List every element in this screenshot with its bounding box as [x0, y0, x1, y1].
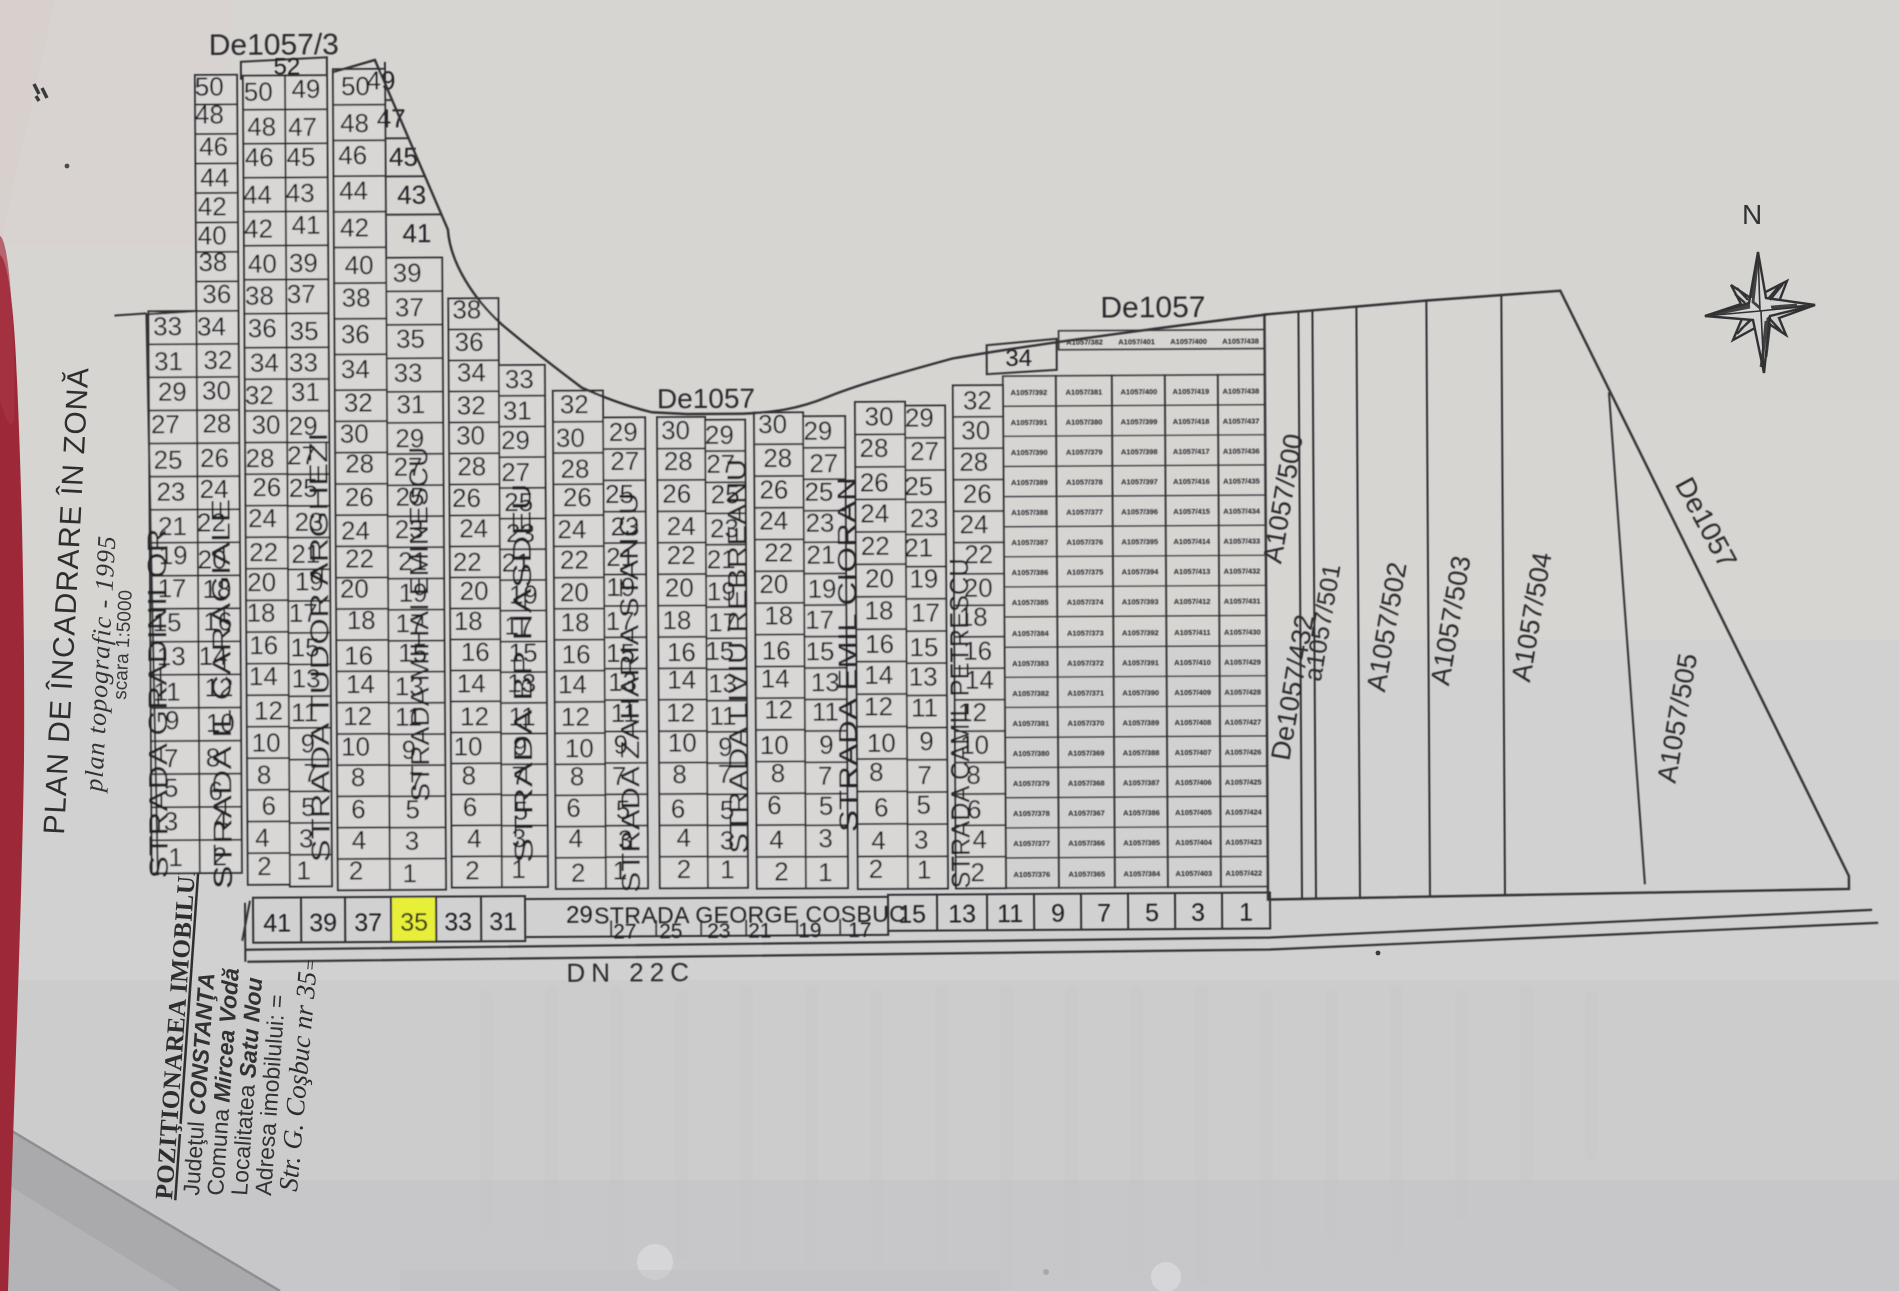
svg-text:A1057/372: A1057/372	[1067, 659, 1104, 668]
svg-text:18: 18	[560, 607, 589, 637]
svg-text:12: 12	[864, 691, 893, 721]
svg-text:13: 13	[909, 662, 938, 692]
svg-text:A1057/400: A1057/400	[1121, 387, 1158, 396]
svg-text:44: 44	[200, 162, 229, 192]
svg-text:9: 9	[919, 726, 934, 756]
svg-text:A1057/388: A1057/388	[1011, 508, 1048, 517]
svg-text:24: 24	[759, 506, 788, 536]
svg-text:42: 42	[244, 213, 273, 243]
svg-text:44: 44	[243, 180, 272, 210]
svg-text:37: 37	[395, 292, 424, 322]
svg-text:30: 30	[661, 415, 690, 445]
svg-text:2: 2	[465, 855, 480, 885]
svg-text:A1057/423: A1057/423	[1225, 838, 1262, 847]
svg-text:18: 18	[764, 601, 793, 631]
svg-text:13: 13	[948, 900, 976, 928]
svg-text:38: 38	[198, 247, 227, 277]
svg-text:5: 5	[1145, 899, 1159, 927]
svg-text:8: 8	[869, 757, 884, 787]
svg-text:A1057/431: A1057/431	[1224, 597, 1261, 606]
svg-text:De1057: De1057	[1100, 291, 1205, 325]
svg-text:26: 26	[563, 482, 592, 512]
svg-text:STRADA TUDOR ARGHEZI: STRADA TUDOR ARGHEZI	[303, 432, 336, 862]
svg-text:30: 30	[202, 375, 231, 405]
svg-text:26: 26	[662, 478, 691, 508]
svg-text:A1057/406: A1057/406	[1175, 778, 1212, 787]
svg-text:44: 44	[339, 175, 368, 205]
svg-text:10: 10	[760, 730, 789, 760]
svg-text:A1057/388: A1057/388	[1123, 748, 1160, 757]
svg-text:A1057/398: A1057/398	[1121, 447, 1158, 456]
svg-text:A1057/411: A1057/411	[1174, 628, 1210, 637]
svg-text:10: 10	[252, 728, 281, 758]
svg-text:3: 3	[1191, 899, 1205, 927]
svg-text:8: 8	[771, 758, 786, 788]
svg-text:9: 9	[819, 730, 834, 760]
svg-text:1: 1	[402, 858, 417, 888]
svg-text:2: 2	[677, 854, 692, 884]
svg-text:20: 20	[865, 563, 894, 593]
svg-text:22: 22	[249, 537, 278, 567]
svg-text:45: 45	[286, 142, 315, 172]
svg-text:A1057/367: A1057/367	[1068, 809, 1105, 818]
svg-text:A1057/412: A1057/412	[1174, 597, 1211, 606]
svg-text:STRADA MIHAI EMINESCU: STRADA MIHAI EMINESCU	[403, 447, 435, 802]
svg-text:A1057/394: A1057/394	[1122, 567, 1160, 576]
svg-text:5: 5	[819, 791, 834, 821]
svg-text:20: 20	[247, 567, 276, 597]
svg-text:A1057/390: A1057/390	[1011, 448, 1048, 457]
svg-text:N: N	[1742, 199, 1762, 230]
svg-text:A1057/387: A1057/387	[1123, 778, 1160, 787]
svg-text:A1057/416: A1057/416	[1173, 477, 1210, 486]
svg-text:A1057/414: A1057/414	[1173, 537, 1211, 546]
svg-text:6: 6	[566, 793, 581, 823]
svg-text:6: 6	[261, 791, 276, 821]
svg-text:A1057/370: A1057/370	[1068, 719, 1105, 728]
svg-text:A1057/404: A1057/404	[1175, 838, 1213, 847]
svg-text:10: 10	[867, 728, 896, 758]
svg-text:41: 41	[263, 909, 291, 937]
svg-text:A1057/408: A1057/408	[1175, 718, 1212, 727]
svg-text:30: 30	[961, 415, 990, 445]
svg-text:30: 30	[456, 420, 485, 450]
svg-text:26: 26	[200, 443, 229, 473]
svg-text:4: 4	[871, 825, 886, 855]
svg-text:8: 8	[257, 760, 272, 790]
svg-text:STRADA LIVIU REBREANU: STRADA LIVIU REBREANU	[721, 459, 753, 854]
svg-text:A1057/422: A1057/422	[1225, 869, 1262, 878]
svg-text:19: 19	[909, 563, 938, 593]
svg-text:4: 4	[769, 824, 784, 854]
svg-text:49: 49	[366, 65, 395, 95]
svg-text:A1057/427: A1057/427	[1225, 718, 1262, 727]
svg-text:18: 18	[662, 605, 691, 635]
svg-text:27: 27	[910, 436, 939, 466]
svg-text:3: 3	[818, 823, 833, 853]
svg-text:De1057: De1057	[657, 383, 755, 415]
svg-text:1: 1	[720, 854, 735, 884]
svg-text:4: 4	[467, 823, 482, 853]
svg-text:A1057/428: A1057/428	[1224, 688, 1261, 697]
svg-text:16: 16	[344, 640, 373, 670]
svg-text:35: 35	[396, 324, 425, 354]
svg-text:49: 49	[291, 74, 320, 104]
svg-text:10: 10	[565, 733, 594, 763]
svg-text:A1057/385: A1057/385	[1012, 598, 1049, 607]
svg-text:A1057/377: A1057/377	[1013, 839, 1050, 848]
svg-text:33: 33	[394, 358, 423, 388]
svg-text:33: 33	[505, 364, 534, 394]
svg-text:32: 32	[344, 388, 373, 418]
svg-text:A1057/434: A1057/434	[1223, 507, 1261, 516]
svg-text:18: 18	[347, 605, 376, 635]
svg-text:24: 24	[667, 511, 696, 541]
svg-text:43: 43	[286, 178, 315, 208]
svg-text:6: 6	[351, 794, 366, 824]
svg-text:A1057/433: A1057/433	[1223, 537, 1260, 546]
svg-text:14: 14	[864, 660, 893, 690]
svg-text:A1057/399: A1057/399	[1121, 417, 1158, 426]
svg-text:16: 16	[562, 639, 591, 669]
svg-text:24: 24	[341, 515, 370, 545]
svg-text:2: 2	[774, 856, 789, 886]
svg-text:A1057/374: A1057/374	[1067, 598, 1105, 607]
svg-text:16: 16	[249, 630, 278, 660]
svg-text:A1057/410: A1057/410	[1174, 658, 1211, 667]
svg-text:39: 39	[393, 258, 422, 288]
svg-text:42: 42	[340, 212, 369, 242]
svg-text:30: 30	[340, 418, 369, 448]
svg-text:18: 18	[246, 597, 275, 627]
svg-text:8: 8	[672, 759, 687, 789]
svg-text:10: 10	[454, 731, 483, 761]
svg-text:A1057/392: A1057/392	[1011, 388, 1048, 397]
svg-text:27: 27	[809, 448, 838, 478]
svg-text:A1057/391: A1057/391	[1122, 658, 1159, 667]
svg-text:46: 46	[199, 132, 228, 162]
svg-text:31: 31	[396, 389, 425, 419]
svg-text:A1057/403: A1057/403	[1175, 869, 1212, 878]
svg-text:A1057/384: A1057/384	[1123, 869, 1161, 878]
svg-text:32: 32	[963, 385, 992, 415]
svg-text:38: 38	[245, 280, 274, 310]
svg-text:33: 33	[444, 908, 472, 936]
svg-text:A1057/436: A1057/436	[1223, 447, 1260, 456]
svg-text:10: 10	[668, 727, 697, 757]
svg-text:36: 36	[341, 319, 370, 349]
svg-text:A1057/368: A1057/368	[1068, 779, 1105, 788]
svg-text:STRADA EMIL CIORAN: STRADA EMIL CIORAN	[831, 477, 863, 832]
svg-text:28: 28	[202, 408, 231, 438]
svg-text:14: 14	[558, 669, 587, 699]
svg-text:26: 26	[759, 475, 788, 505]
svg-text:DN 22C: DN 22C	[566, 957, 695, 988]
svg-text:22: 22	[764, 538, 793, 568]
svg-text:8: 8	[351, 762, 366, 792]
svg-text:A1057/395: A1057/395	[1121, 537, 1158, 546]
svg-text:14: 14	[667, 664, 696, 694]
svg-text:7: 7	[1097, 899, 1111, 927]
svg-text:A1057/409: A1057/409	[1174, 688, 1211, 697]
svg-text:20: 20	[560, 577, 589, 607]
svg-text:A1057/366: A1057/366	[1068, 839, 1105, 848]
svg-text:35: 35	[400, 909, 428, 937]
svg-text:6: 6	[463, 792, 478, 822]
svg-text:A1057/382: A1057/382	[1012, 689, 1049, 698]
svg-text:A1057/391: A1057/391	[1011, 418, 1048, 427]
svg-text:2: 2	[869, 854, 884, 884]
svg-text:11: 11	[911, 692, 938, 722]
svg-text:40: 40	[198, 220, 227, 250]
svg-text:A1057/376: A1057/376	[1066, 538, 1103, 547]
svg-text:23: 23	[156, 477, 185, 507]
svg-text:45: 45	[389, 142, 418, 172]
svg-text:A1057/438: A1057/438	[1222, 337, 1259, 346]
svg-text:26: 26	[963, 479, 992, 509]
svg-text:24: 24	[860, 498, 889, 528]
svg-text:39: 39	[309, 909, 337, 937]
svg-text:A1057/417: A1057/417	[1173, 447, 1210, 456]
svg-text:A1057/385: A1057/385	[1123, 838, 1160, 847]
svg-text:29: 29	[803, 416, 832, 446]
svg-text:29: 29	[501, 425, 530, 455]
svg-text:34: 34	[197, 311, 226, 341]
svg-text:25: 25	[153, 445, 182, 475]
svg-text:43: 43	[397, 180, 426, 210]
svg-text:A1057/384: A1057/384	[1012, 629, 1050, 638]
svg-text:A1057/424: A1057/424	[1225, 808, 1263, 817]
svg-text:1: 1	[917, 854, 932, 884]
svg-text:28: 28	[457, 451, 486, 481]
svg-text:A1057/413: A1057/413	[1174, 567, 1211, 576]
svg-text:A1057/376: A1057/376	[1013, 870, 1050, 879]
svg-text:17: 17	[911, 598, 940, 628]
svg-text:24: 24	[248, 503, 277, 533]
svg-text:18: 18	[864, 595, 893, 625]
svg-text:A1057/380: A1057/380	[1066, 418, 1103, 427]
svg-text:26: 26	[252, 472, 281, 502]
svg-text:47: 47	[288, 112, 317, 142]
svg-text:27: 27	[151, 409, 180, 439]
svg-text:28: 28	[560, 453, 589, 483]
svg-text:14: 14	[457, 668, 486, 698]
svg-text:A1057/373: A1057/373	[1067, 629, 1104, 638]
svg-text:12: 12	[561, 701, 590, 731]
svg-text:5: 5	[916, 789, 931, 819]
svg-text:30: 30	[251, 409, 280, 439]
svg-text:A1057/397: A1057/397	[1121, 477, 1158, 486]
svg-text:A1057/437: A1057/437	[1223, 417, 1260, 426]
svg-text:36: 36	[202, 279, 231, 309]
svg-text:A1057/379: A1057/379	[1066, 448, 1103, 457]
svg-text:37: 37	[287, 279, 316, 309]
svg-text:A1057/380: A1057/380	[1013, 749, 1050, 758]
svg-text:4: 4	[352, 825, 367, 855]
svg-text:A1057/386: A1057/386	[1012, 568, 1049, 577]
svg-text:29: 29	[905, 403, 934, 433]
svg-text:1: 1	[1239, 899, 1253, 927]
svg-text:30: 30	[864, 401, 893, 431]
svg-text:A1057/407: A1057/407	[1175, 748, 1212, 757]
svg-text:32: 32	[245, 380, 274, 410]
svg-text:10: 10	[341, 732, 370, 762]
svg-text:A1057/438: A1057/438	[1223, 387, 1260, 396]
svg-text:48: 48	[340, 108, 369, 138]
svg-text:15: 15	[909, 632, 938, 662]
svg-text:46: 46	[338, 140, 367, 170]
svg-text:28: 28	[664, 446, 693, 476]
svg-text:A1057/365: A1057/365	[1068, 870, 1105, 879]
svg-text:22: 22	[861, 531, 890, 561]
svg-text:12: 12	[666, 697, 695, 727]
svg-text:41: 41	[292, 210, 321, 240]
svg-text:40: 40	[248, 248, 277, 278]
svg-text:36: 36	[455, 327, 484, 357]
svg-text:A1057/371: A1057/371	[1067, 689, 1104, 698]
svg-text:16: 16	[762, 636, 791, 666]
svg-text:De1057/3: De1057/3	[209, 28, 339, 62]
svg-text:STRADA CAMIL PETRESCU: STRADA CAMIL PETRESCU	[944, 558, 976, 888]
svg-text:17: 17	[805, 605, 834, 635]
svg-text:32: 32	[457, 390, 486, 420]
svg-text:28: 28	[959, 447, 988, 477]
svg-text:A1057/389: A1057/389	[1011, 478, 1048, 487]
svg-text:15: 15	[805, 636, 834, 666]
svg-text:39: 39	[289, 248, 318, 278]
svg-text:29: 29	[158, 377, 187, 407]
svg-text:A1057/415: A1057/415	[1173, 507, 1210, 516]
svg-text:40: 40	[345, 250, 374, 280]
svg-text:A1057/418: A1057/418	[1173, 417, 1210, 426]
svg-text:A1057/405: A1057/405	[1175, 808, 1212, 817]
svg-text:26: 26	[860, 467, 889, 497]
svg-text:34: 34	[250, 348, 279, 378]
svg-text:20: 20	[460, 576, 489, 606]
svg-text:27: 27	[610, 446, 639, 476]
svg-text:41: 41	[402, 218, 431, 248]
svg-text:14: 14	[249, 661, 278, 691]
svg-text:22: 22	[345, 543, 374, 573]
svg-text:A1057/378: A1057/378	[1066, 478, 1103, 487]
svg-text:11: 11	[997, 900, 1023, 928]
svg-text:14: 14	[346, 669, 375, 699]
svg-text:4: 4	[568, 823, 583, 853]
svg-text:3: 3	[405, 826, 420, 856]
svg-text:28: 28	[245, 443, 274, 473]
svg-text:6: 6	[874, 792, 889, 822]
svg-text:48: 48	[195, 99, 224, 129]
svg-text:32: 32	[560, 389, 589, 419]
svg-text:A1057/429: A1057/429	[1224, 658, 1261, 667]
svg-text:STRADA IL CARAGIALE: STRADA IL CARAGIALE	[206, 499, 238, 889]
svg-text:A1057/430: A1057/430	[1224, 628, 1261, 637]
svg-text:A1057/386: A1057/386	[1123, 808, 1160, 817]
svg-text:A1057/381: A1057/381	[1013, 719, 1050, 728]
svg-text:16: 16	[865, 629, 894, 659]
svg-text:16: 16	[667, 637, 696, 667]
svg-text:23: 23	[910, 503, 939, 533]
svg-text:38: 38	[342, 283, 371, 313]
svg-text:22: 22	[667, 540, 696, 570]
svg-text:6: 6	[767, 790, 782, 820]
svg-text:12: 12	[764, 695, 793, 725]
svg-text:A1057/378: A1057/378	[1013, 809, 1050, 818]
svg-text:STRADA GEORGE COSBUC: STRADA GEORGE COSBUC	[594, 901, 906, 929]
svg-text:35: 35	[290, 316, 319, 346]
svg-text:28: 28	[763, 443, 792, 473]
svg-text:27: 27	[501, 457, 530, 487]
svg-text:A1057/390: A1057/390	[1122, 688, 1159, 697]
svg-text:A1057/400: A1057/400	[1170, 337, 1207, 346]
svg-text:31: 31	[291, 377, 320, 407]
svg-text:A1057/377: A1057/377	[1066, 508, 1103, 517]
svg-text:A1057/425: A1057/425	[1225, 778, 1262, 787]
svg-text:A1057/369: A1057/369	[1068, 749, 1105, 758]
svg-text:48: 48	[247, 111, 276, 141]
svg-text:22: 22	[453, 547, 482, 577]
svg-text:31: 31	[503, 396, 532, 426]
svg-text:A1057/435: A1057/435	[1223, 477, 1260, 486]
svg-text:32: 32	[203, 345, 232, 375]
svg-text:A1057/383: A1057/383	[1012, 659, 1049, 668]
svg-text:7: 7	[917, 760, 932, 790]
svg-text:12: 12	[254, 695, 283, 725]
svg-text:A1057/392: A1057/392	[1122, 628, 1159, 637]
svg-text:14: 14	[761, 663, 790, 693]
svg-text:31: 31	[489, 908, 517, 936]
svg-text:A1057/401: A1057/401	[1118, 337, 1155, 346]
svg-text:21: 21	[904, 533, 933, 563]
svg-text:28: 28	[859, 433, 888, 463]
svg-text:24: 24	[557, 514, 586, 544]
svg-text:A1057/381: A1057/381	[1066, 388, 1103, 397]
svg-text:2: 2	[349, 856, 364, 886]
svg-text:28: 28	[345, 448, 374, 478]
svg-text:30: 30	[758, 409, 787, 439]
svg-text:16: 16	[461, 637, 490, 667]
svg-text:25: 25	[904, 471, 933, 501]
svg-text:A1057/393: A1057/393	[1122, 597, 1159, 606]
svg-text:3: 3	[914, 825, 929, 855]
svg-text:STRADA BP HASDEU: STRADA BP HASDEU	[506, 483, 538, 863]
svg-text:33: 33	[289, 347, 318, 377]
svg-text:50: 50	[195, 72, 224, 102]
svg-text:36: 36	[248, 313, 277, 343]
svg-text:7: 7	[818, 761, 833, 791]
svg-text:A1057/389: A1057/389	[1123, 718, 1160, 727]
svg-text:34: 34	[457, 357, 486, 387]
svg-text:A1057/396: A1057/396	[1121, 507, 1158, 516]
svg-text:30: 30	[556, 422, 585, 452]
svg-text:4: 4	[676, 823, 691, 853]
svg-text:24: 24	[459, 513, 488, 543]
svg-text:20: 20	[340, 574, 369, 604]
svg-text:9: 9	[1051, 900, 1065, 928]
svg-text:A1057/419: A1057/419	[1173, 387, 1210, 396]
svg-text:STRADA GRADINILOR: STRADA GRADINILOR	[142, 528, 174, 878]
svg-text:STRADA ZAHARIA STANCU: STRADA ZAHARIA STANCU	[614, 492, 646, 892]
svg-text:29: 29	[566, 902, 593, 929]
svg-text:26: 26	[452, 483, 481, 513]
svg-text:4: 4	[255, 823, 270, 853]
svg-text:2: 2	[571, 858, 586, 888]
svg-text:8: 8	[570, 761, 585, 791]
svg-text:37: 37	[354, 909, 382, 937]
svg-text:A1057/426: A1057/426	[1225, 748, 1262, 757]
svg-text:12: 12	[343, 701, 372, 731]
svg-text:23: 23	[805, 508, 834, 538]
